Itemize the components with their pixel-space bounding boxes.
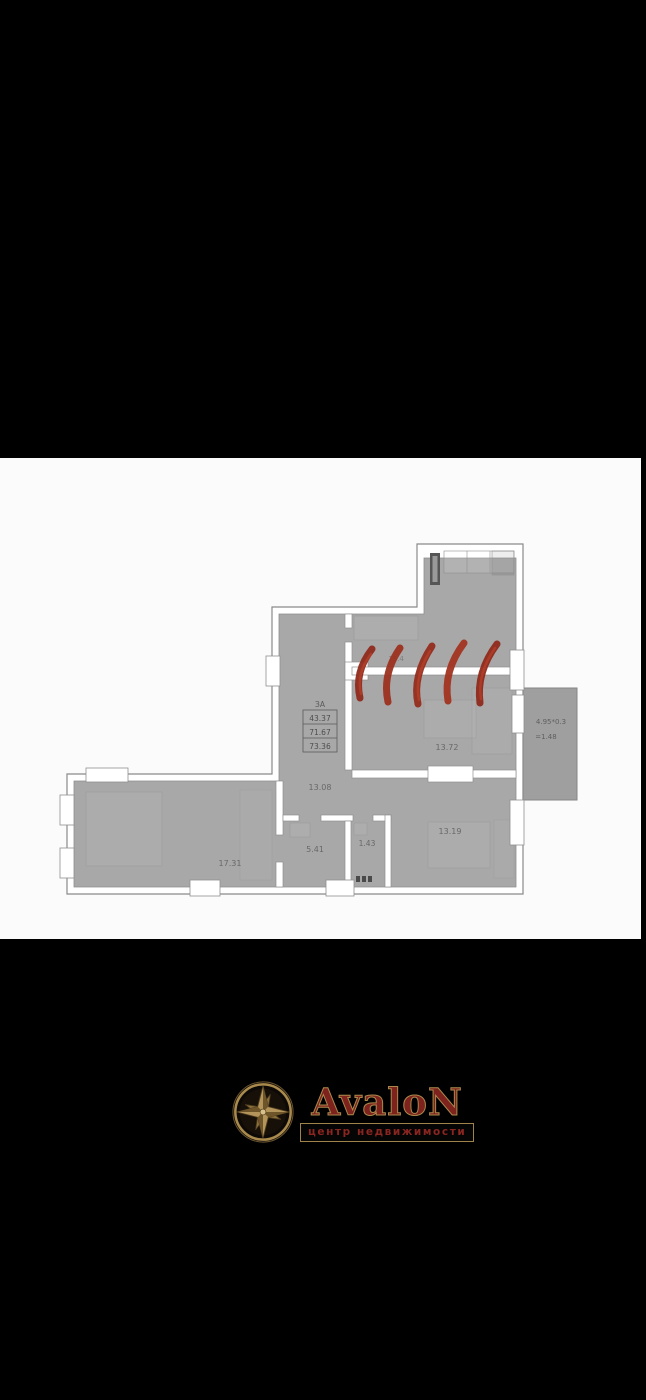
room-area-label: 13.19 bbox=[439, 827, 462, 836]
compass-rose-icon bbox=[230, 1079, 296, 1145]
brand-logo: AvaloN центр недвижимости bbox=[230, 1079, 474, 1145]
balcony-formula: 4.95*0.3 bbox=[536, 718, 566, 726]
room-area-label: 5.41 bbox=[306, 845, 324, 854]
stamp-area-2: 71.67 bbox=[309, 728, 331, 737]
screenshot-root: 4.95*0.3 =1.48 bbox=[0, 0, 646, 1400]
window bbox=[60, 795, 74, 825]
window bbox=[510, 800, 524, 845]
window bbox=[266, 656, 280, 686]
floor-plan-panel: 4.95*0.3 =1.48 bbox=[0, 458, 641, 939]
room-area-label: 1.43 bbox=[359, 839, 376, 848]
kitchen-unit bbox=[430, 553, 440, 585]
window bbox=[60, 848, 74, 878]
room-area-label: 13.72 bbox=[436, 743, 459, 752]
room-area-label: 13.08 bbox=[309, 783, 332, 792]
balcony: 4.95*0.3 =1.48 bbox=[523, 688, 577, 800]
brand-name: AvaloN bbox=[312, 1083, 463, 1121]
vent-shaft bbox=[356, 876, 372, 882]
room-area-label: 17.31 bbox=[219, 859, 242, 868]
stamp-area-3: 73.36 bbox=[309, 742, 331, 751]
stamp-type: ЗА bbox=[315, 700, 326, 709]
window bbox=[190, 880, 220, 896]
brand-tagline: центр недвижимости bbox=[300, 1123, 474, 1142]
brand-text-block: AvaloN центр недвижимости bbox=[300, 1083, 474, 1142]
balcony-door bbox=[512, 695, 524, 733]
window bbox=[86, 768, 128, 782]
window bbox=[510, 650, 524, 690]
stamp-area-1: 43.37 bbox=[309, 714, 331, 723]
window bbox=[326, 880, 354, 896]
balcony-area: =1.48 bbox=[535, 733, 556, 741]
floor-plan-drawing: 4.95*0.3 =1.48 bbox=[0, 458, 641, 939]
